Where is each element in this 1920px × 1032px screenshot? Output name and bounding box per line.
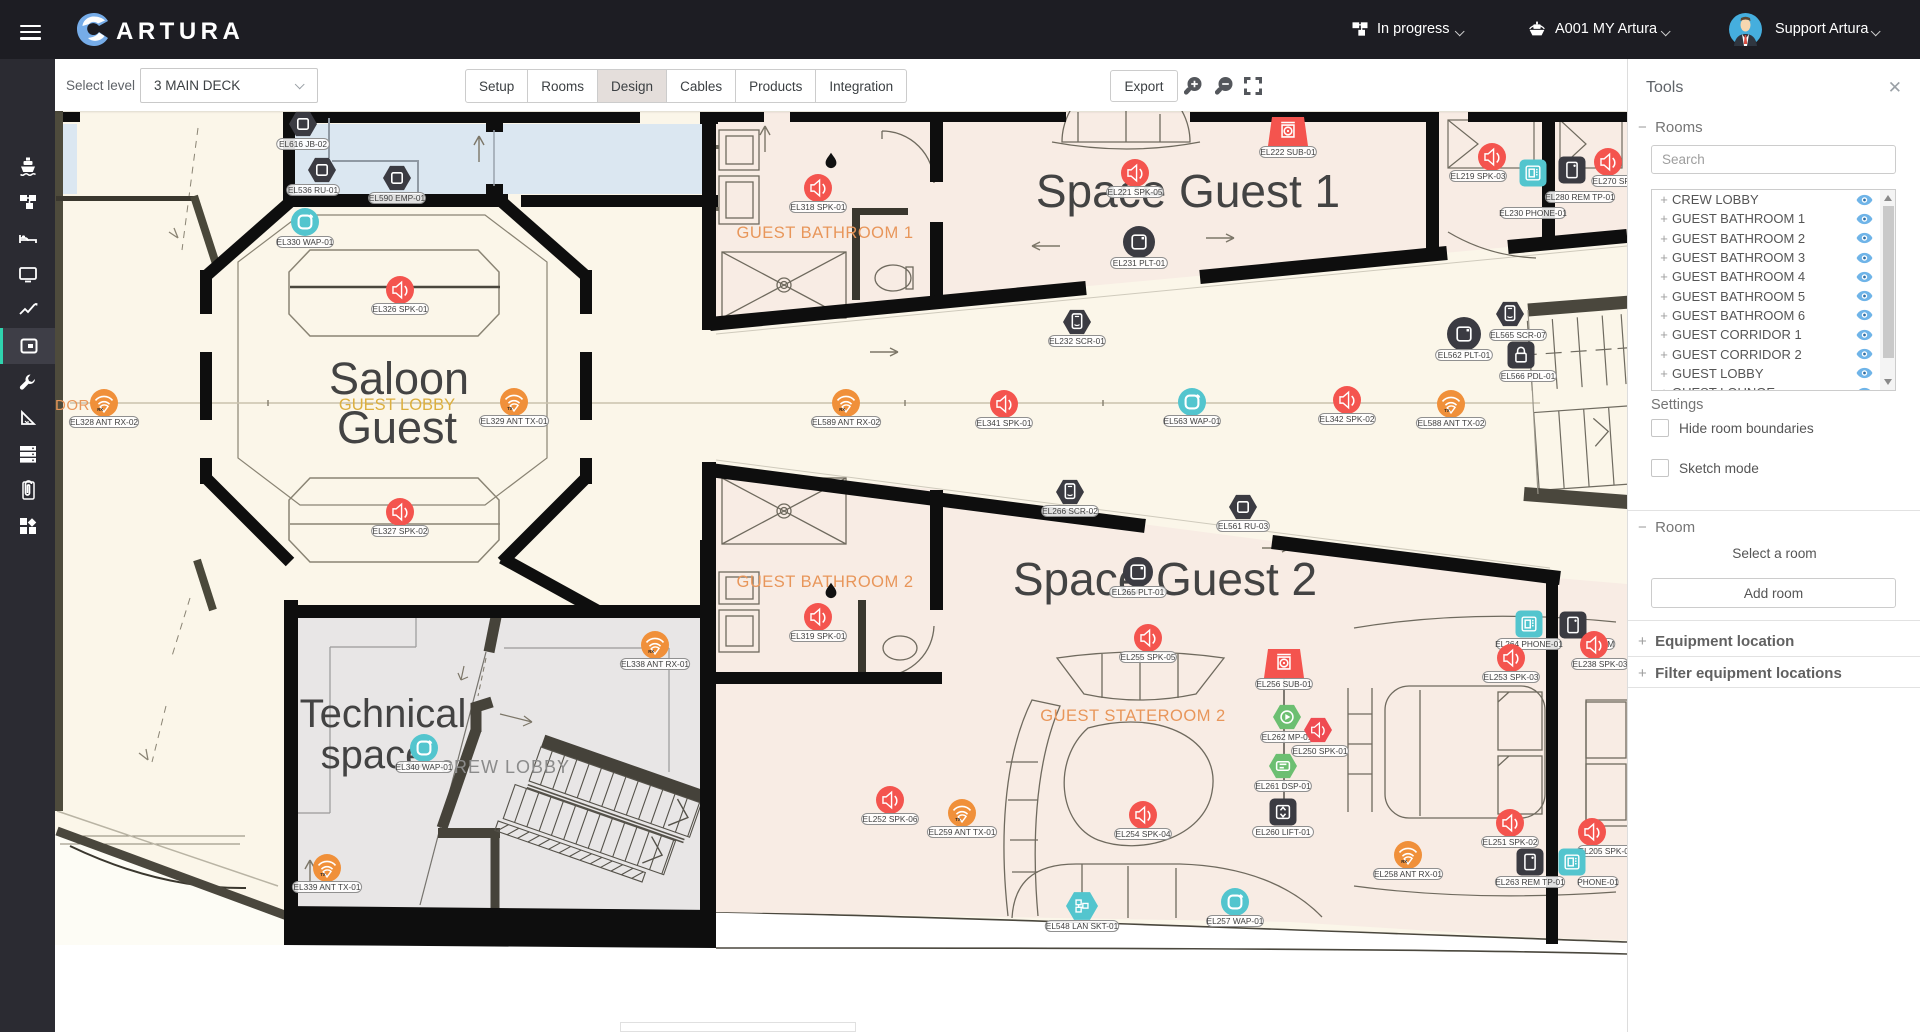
svg-text:TX: TX — [955, 817, 961, 822]
svg-text:EL263 REM TP-01: EL263 REM TP-01 — [1495, 877, 1565, 887]
svg-text:TX: TX — [320, 872, 326, 877]
svg-text:GUEST BATHROOM 1: GUEST BATHROOM 1 — [737, 224, 914, 242]
svg-text:EL230 PHONE-01: EL230 PHONE-01 — [1499, 208, 1567, 218]
svg-text:EL260 LIFT-01: EL260 LIFT-01 — [1256, 827, 1311, 837]
svg-text:EL256 SUB-01: EL256 SUB-01 — [1256, 679, 1312, 689]
svg-text:EL318 SPK-01: EL318 SPK-01 — [791, 202, 846, 212]
svg-text:EL219 SPK-03: EL219 SPK-03 — [1451, 171, 1506, 181]
svg-text:EL616 JB-02: EL616 JB-02 — [279, 139, 327, 149]
svg-text:EL238 SPK-03: EL238 SPK-03 — [1573, 659, 1627, 669]
svg-text:EL255 SPK-05: EL255 SPK-05 — [1121, 652, 1176, 662]
svg-text:EL327 SPK-02: EL327 SPK-02 — [373, 526, 428, 536]
svg-text:EL259 ANT TX-01: EL259 ANT TX-01 — [928, 827, 995, 837]
svg-text:EL265 PLT-01: EL265 PLT-01 — [1112, 587, 1165, 597]
svg-text:EL261 DSP-01: EL261 DSP-01 — [1255, 781, 1311, 791]
svg-text:GUEST LOBBY: GUEST LOBBY — [339, 396, 455, 414]
svg-text:TX: TX — [507, 406, 513, 411]
svg-text:EL341 SPK-01: EL341 SPK-01 — [977, 418, 1032, 428]
svg-text:EL589 ANT RX-02: EL589 ANT RX-02 — [812, 417, 880, 427]
svg-text:EL562 PLT-01: EL562 PLT-01 — [1438, 350, 1491, 360]
svg-text:EL561 RU-03: EL561 RU-03 — [1218, 521, 1269, 531]
svg-text:EL270 SPK: EL270 SPK — [1593, 176, 1627, 186]
svg-text:EL339 ANT TX-01: EL339 ANT TX-01 — [293, 882, 360, 892]
svg-text:RX: RX — [839, 407, 845, 412]
svg-text:EL257 WAP-01: EL257 WAP-01 — [1207, 916, 1264, 926]
svg-text:EL319 SPK-01: EL319 SPK-01 — [791, 631, 846, 641]
svg-text:RX: RX — [97, 407, 103, 412]
svg-text:EL251 SPK-02: EL251 SPK-02 — [1483, 837, 1538, 847]
svg-text:EL338 ANT RX-01: EL338 ANT RX-01 — [621, 659, 689, 669]
svg-text:EL231 PLT-01: EL231 PLT-01 — [1113, 258, 1166, 268]
svg-text:EL340 WAP-01: EL340 WAP-01 — [396, 762, 453, 772]
svg-text:TX: TX — [1444, 408, 1450, 413]
svg-text:EL563 WAP-01: EL563 WAP-01 — [1164, 416, 1221, 426]
svg-text:EL565 SCR-07: EL565 SCR-07 — [1490, 330, 1546, 340]
svg-text:CREW LOBBY: CREW LOBBY — [440, 757, 570, 777]
svg-text:EL342 SPK-02: EL342 SPK-02 — [1320, 414, 1375, 424]
svg-text:S: S — [1519, 356, 1523, 362]
svg-text:EL326 SPK-01: EL326 SPK-01 — [373, 304, 428, 314]
svg-text:EL262 MP-01: EL262 MP-01 — [1262, 732, 1313, 742]
svg-text:EL252 SPK-06: EL252 SPK-06 — [863, 814, 918, 824]
svg-text:GUEST STATEROOM 2: GUEST STATEROOM 2 — [1040, 707, 1225, 725]
svg-text:PHONE-01: PHONE-01 — [1577, 877, 1619, 887]
svg-text:EL258 ANT RX-01: EL258 ANT RX-01 — [1374, 869, 1442, 879]
svg-text:EL266 SCR-02: EL266 SCR-02 — [1042, 506, 1098, 516]
svg-text:EL548 LAN SKT-01: EL548 LAN SKT-01 — [1046, 921, 1119, 931]
svg-text:EL590 EMP-01: EL590 EMP-01 — [369, 193, 426, 203]
svg-text:RX: RX — [1401, 859, 1407, 864]
svg-text:EL588 ANT TX-02: EL588 ANT TX-02 — [1417, 418, 1484, 428]
svg-text:EL250 SPK-01: EL250 SPK-01 — [1293, 746, 1348, 756]
svg-text:EL280 REM TP-01: EL280 REM TP-01 — [1545, 192, 1615, 202]
svg-text:RX: RX — [648, 649, 654, 654]
svg-text:EL253 SPK-03: EL253 SPK-03 — [1484, 672, 1539, 682]
svg-text:Space Guest 1: Space Guest 1 — [1036, 165, 1340, 217]
svg-text:EL254 SPK-04: EL254 SPK-04 — [1116, 829, 1171, 839]
svg-text:EL222 SUB-01: EL222 SUB-01 — [1260, 147, 1316, 157]
svg-text:Space Guest 2: Space Guest 2 — [1013, 553, 1317, 605]
svg-text:EL205 SPK-02: EL205 SPK-02 — [1579, 846, 1627, 856]
svg-text:GUEST BATHROOM 2: GUEST BATHROOM 2 — [737, 573, 914, 591]
svg-text:EL232 SCR-01: EL232 SCR-01 — [1049, 336, 1105, 346]
svg-text:EL566 PDL-01: EL566 PDL-01 — [1501, 371, 1556, 381]
svg-text:EL330 WAP-01: EL330 WAP-01 — [277, 237, 334, 247]
svg-text:EL329 ANT TX-01: EL329 ANT TX-01 — [480, 416, 547, 426]
svg-text:EL221 SPK-05: EL221 SPK-05 — [1108, 187, 1163, 197]
svg-text:Technical: Technical — [300, 692, 467, 736]
svg-text:EL536 RU-01: EL536 RU-01 — [288, 185, 339, 195]
svg-text:EL328 ANT RX-02: EL328 ANT RX-02 — [70, 417, 138, 427]
